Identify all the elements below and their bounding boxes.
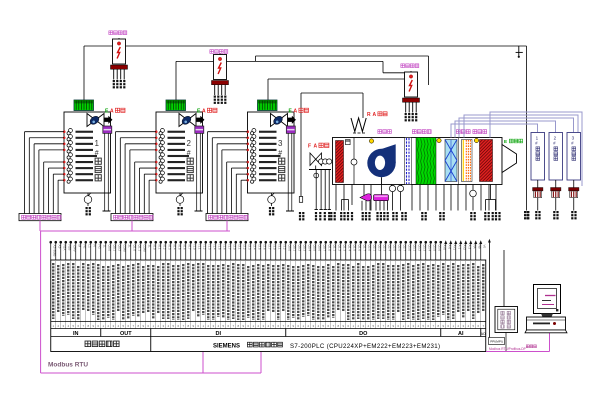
svg-text:Modbus RTU: Modbus RTU [48, 362, 88, 369]
svg-text:OUT: OUT [120, 331, 132, 337]
svg-text:A: A [373, 112, 377, 118]
svg-text:A: A [294, 109, 298, 115]
svg-text:DO: DO [359, 331, 368, 337]
svg-text:F: F [308, 144, 311, 150]
svg-text:A: A [202, 109, 206, 115]
svg-text:Modbus RTU/Profibus-DP: Modbus RTU/Profibus-DP [489, 347, 526, 351]
svg-text:2: 2 [187, 139, 192, 148]
svg-text:#: # [95, 150, 99, 157]
svg-text:R: R [367, 112, 371, 118]
svg-text:AO: AO [481, 332, 486, 336]
svg-text:DI: DI [216, 331, 222, 337]
svg-text:1: 1 [95, 139, 100, 148]
svg-text:AI: AI [458, 331, 464, 337]
svg-text:3: 3 [278, 139, 283, 148]
svg-text:SIEMENS: SIEMENS [213, 344, 240, 350]
svg-text:A: A [314, 144, 318, 150]
svg-text:#: # [278, 150, 282, 157]
svg-text:S7-200PLC (CPU224XP+EM222+EM22: S7-200PLC (CPU224XP+EM222+EM223+EM231) [290, 343, 440, 350]
svg-text:E: E [504, 139, 507, 144]
svg-text:#: # [187, 150, 191, 157]
svg-text:V0: V0 [483, 245, 487, 249]
svg-text:A: A [110, 109, 114, 115]
svg-text:PPI(MPI): PPI(MPI) [490, 340, 503, 344]
svg-text:IN: IN [73, 331, 79, 337]
